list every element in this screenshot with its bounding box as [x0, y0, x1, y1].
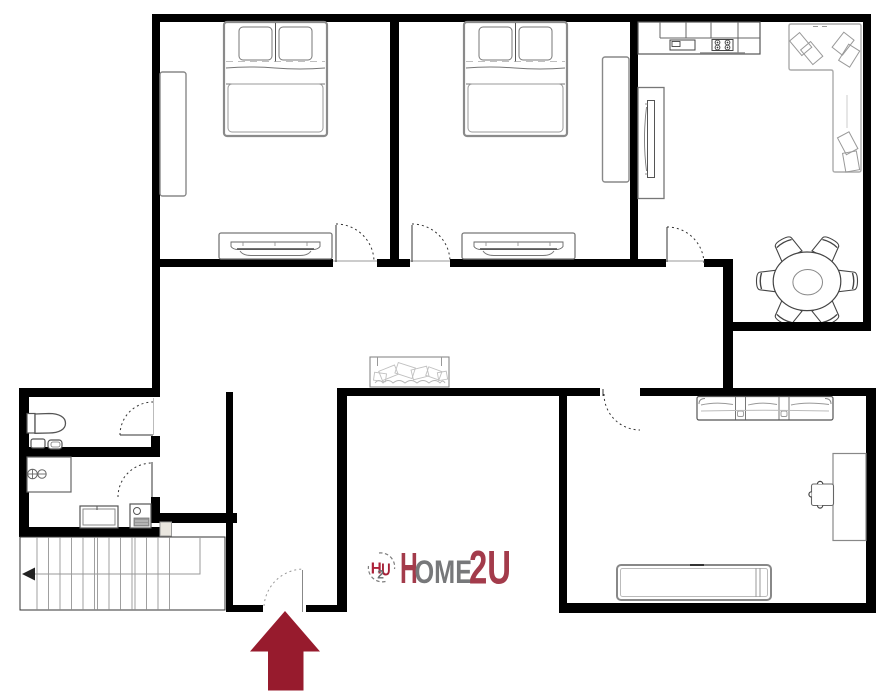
- svg-text:OME: OME: [415, 555, 473, 591]
- svg-text:2: 2: [377, 568, 384, 582]
- svg-text:2U: 2U: [469, 541, 511, 594]
